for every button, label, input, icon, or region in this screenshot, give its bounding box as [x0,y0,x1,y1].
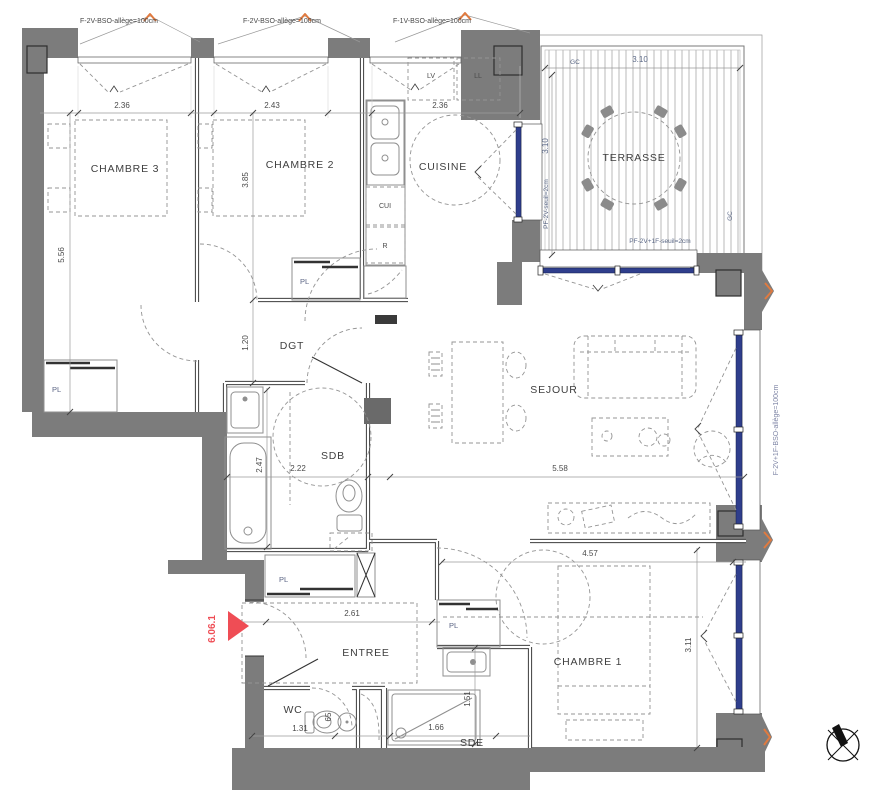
appliance-label-lv: LV [427,73,435,80]
room-label-chambre1: CHAMBRE 1 [554,656,622,668]
bathtub [225,437,271,549]
room-label-chambre2: CHAMBRE 2 [266,159,334,171]
room-label-wc: WC [283,704,302,716]
dim-sdb-height: 2.47 [255,457,264,473]
closet-chambre1 [437,600,500,647]
room-label-cuisine: CUISINE [419,161,467,173]
closet-label-left: PL [52,385,61,394]
closet-label-chambre1: PL [449,621,458,630]
lot-marker: 6.06.1 [207,611,249,643]
floor-plan-page: CHAMBRE 3 CHAMBRE 2 CUISINE TERRASSE SEJ… [0,0,876,800]
dim-chambre3-height: 5.56 [57,247,66,263]
dim-sde-height: 1.51 [463,691,472,707]
room-label-terrasse: TERRASSE [603,152,666,164]
dim-chambre1-width: 4.57 [582,549,598,558]
room-label-sejour: SEJOUR [530,384,577,396]
guardrail-label-top: GC [570,59,580,66]
window-label-top-middle: F-2V-BSO-allège=100cm [243,18,321,25]
bay-point-icon [764,283,772,745]
dining-table [452,342,503,443]
guardrail-label-right: GC [727,211,734,221]
compass-icon [827,724,859,761]
window-top-1 [78,57,191,63]
appliance-label-cui: CUI [379,203,391,210]
room-label-sdb: SDB [321,450,345,462]
window-cuisine-terrace [516,124,521,220]
sdb-washbasin [227,387,263,433]
room-label-sde: SDE [460,737,484,749]
dgt-wall-stub [375,315,397,324]
dim-wc-width: 1.31 [292,724,308,733]
closet-label-hall: PL [279,575,288,584]
entrance-arrow-icon [228,611,249,641]
dim-dgt-height: 1.20 [241,335,250,351]
entree-zone [242,603,417,683]
closet-label-chambre2: PL [300,277,309,286]
dim-sde-width: 1.66 [428,723,444,732]
window-label-right-side: F-2V+1F-BSO-allège=100cm [773,385,780,476]
dim-entree-width: 2.61 [344,609,360,618]
window-label-top-left: F-2V-BSO-allège=100cm [80,18,158,25]
sofa [574,336,696,398]
sideboard [548,503,710,533]
dim-terrasse-width: 3.10 [632,55,648,64]
room-label-dgt: DGT [280,340,305,352]
chambre1-clearance-circle [496,550,590,644]
dim-chambre2-height: 3.85 [241,172,250,188]
room-label-entree: ENTREE [342,647,389,659]
window-top-2 [214,57,328,63]
door-arc-entrance [250,602,306,658]
door-arc-sdb [307,328,362,383]
dim-chambre1-height: 3.11 [684,637,693,653]
window-label-top-right: F-1V-BSO-allège=100cm [393,18,471,25]
appliance-label-ll: LL [474,73,482,80]
dim-wc-door: 65 [324,712,333,721]
door-leaf-entrance [268,659,318,686]
dim-terrasse-height: 3.10 [541,138,550,154]
floor-plan-image: CHAMBRE 3 CHAMBRE 2 CUISINE TERRASSE SEJ… [0,0,876,800]
armchair [694,431,730,467]
door-arc-chambre3 [141,305,197,361]
lot-number-label: 6.06.1 [207,615,218,643]
entrance-door-frame [245,600,264,656]
dim-sdb-width: 2.22 [290,464,306,473]
room-label-chambre3: CHAMBRE 3 [91,163,159,175]
dim-chambre3-width: 2.36 [114,101,130,110]
dim-sejour-width: 5.58 [552,464,568,473]
window-label-terrasse-door: PF-2V-seuil=2cm [543,179,550,229]
doors [141,244,527,740]
sdb-clearance-circle [273,388,371,486]
door-pocket-wc [361,694,379,740]
appliance-label-r: R [382,243,387,250]
dim-cuisine-width: 2.36 [432,101,448,110]
bed-chambre1 [558,566,650,714]
door-arc-chambre2 [200,244,257,301]
dim-chambre2-width: 2.43 [264,101,280,110]
north-arrow-icon [832,724,848,747]
window-label-terrasse-bay: PF-2V+1F-seuil=2cm [629,238,690,245]
door-leaf-sdb [312,357,362,383]
